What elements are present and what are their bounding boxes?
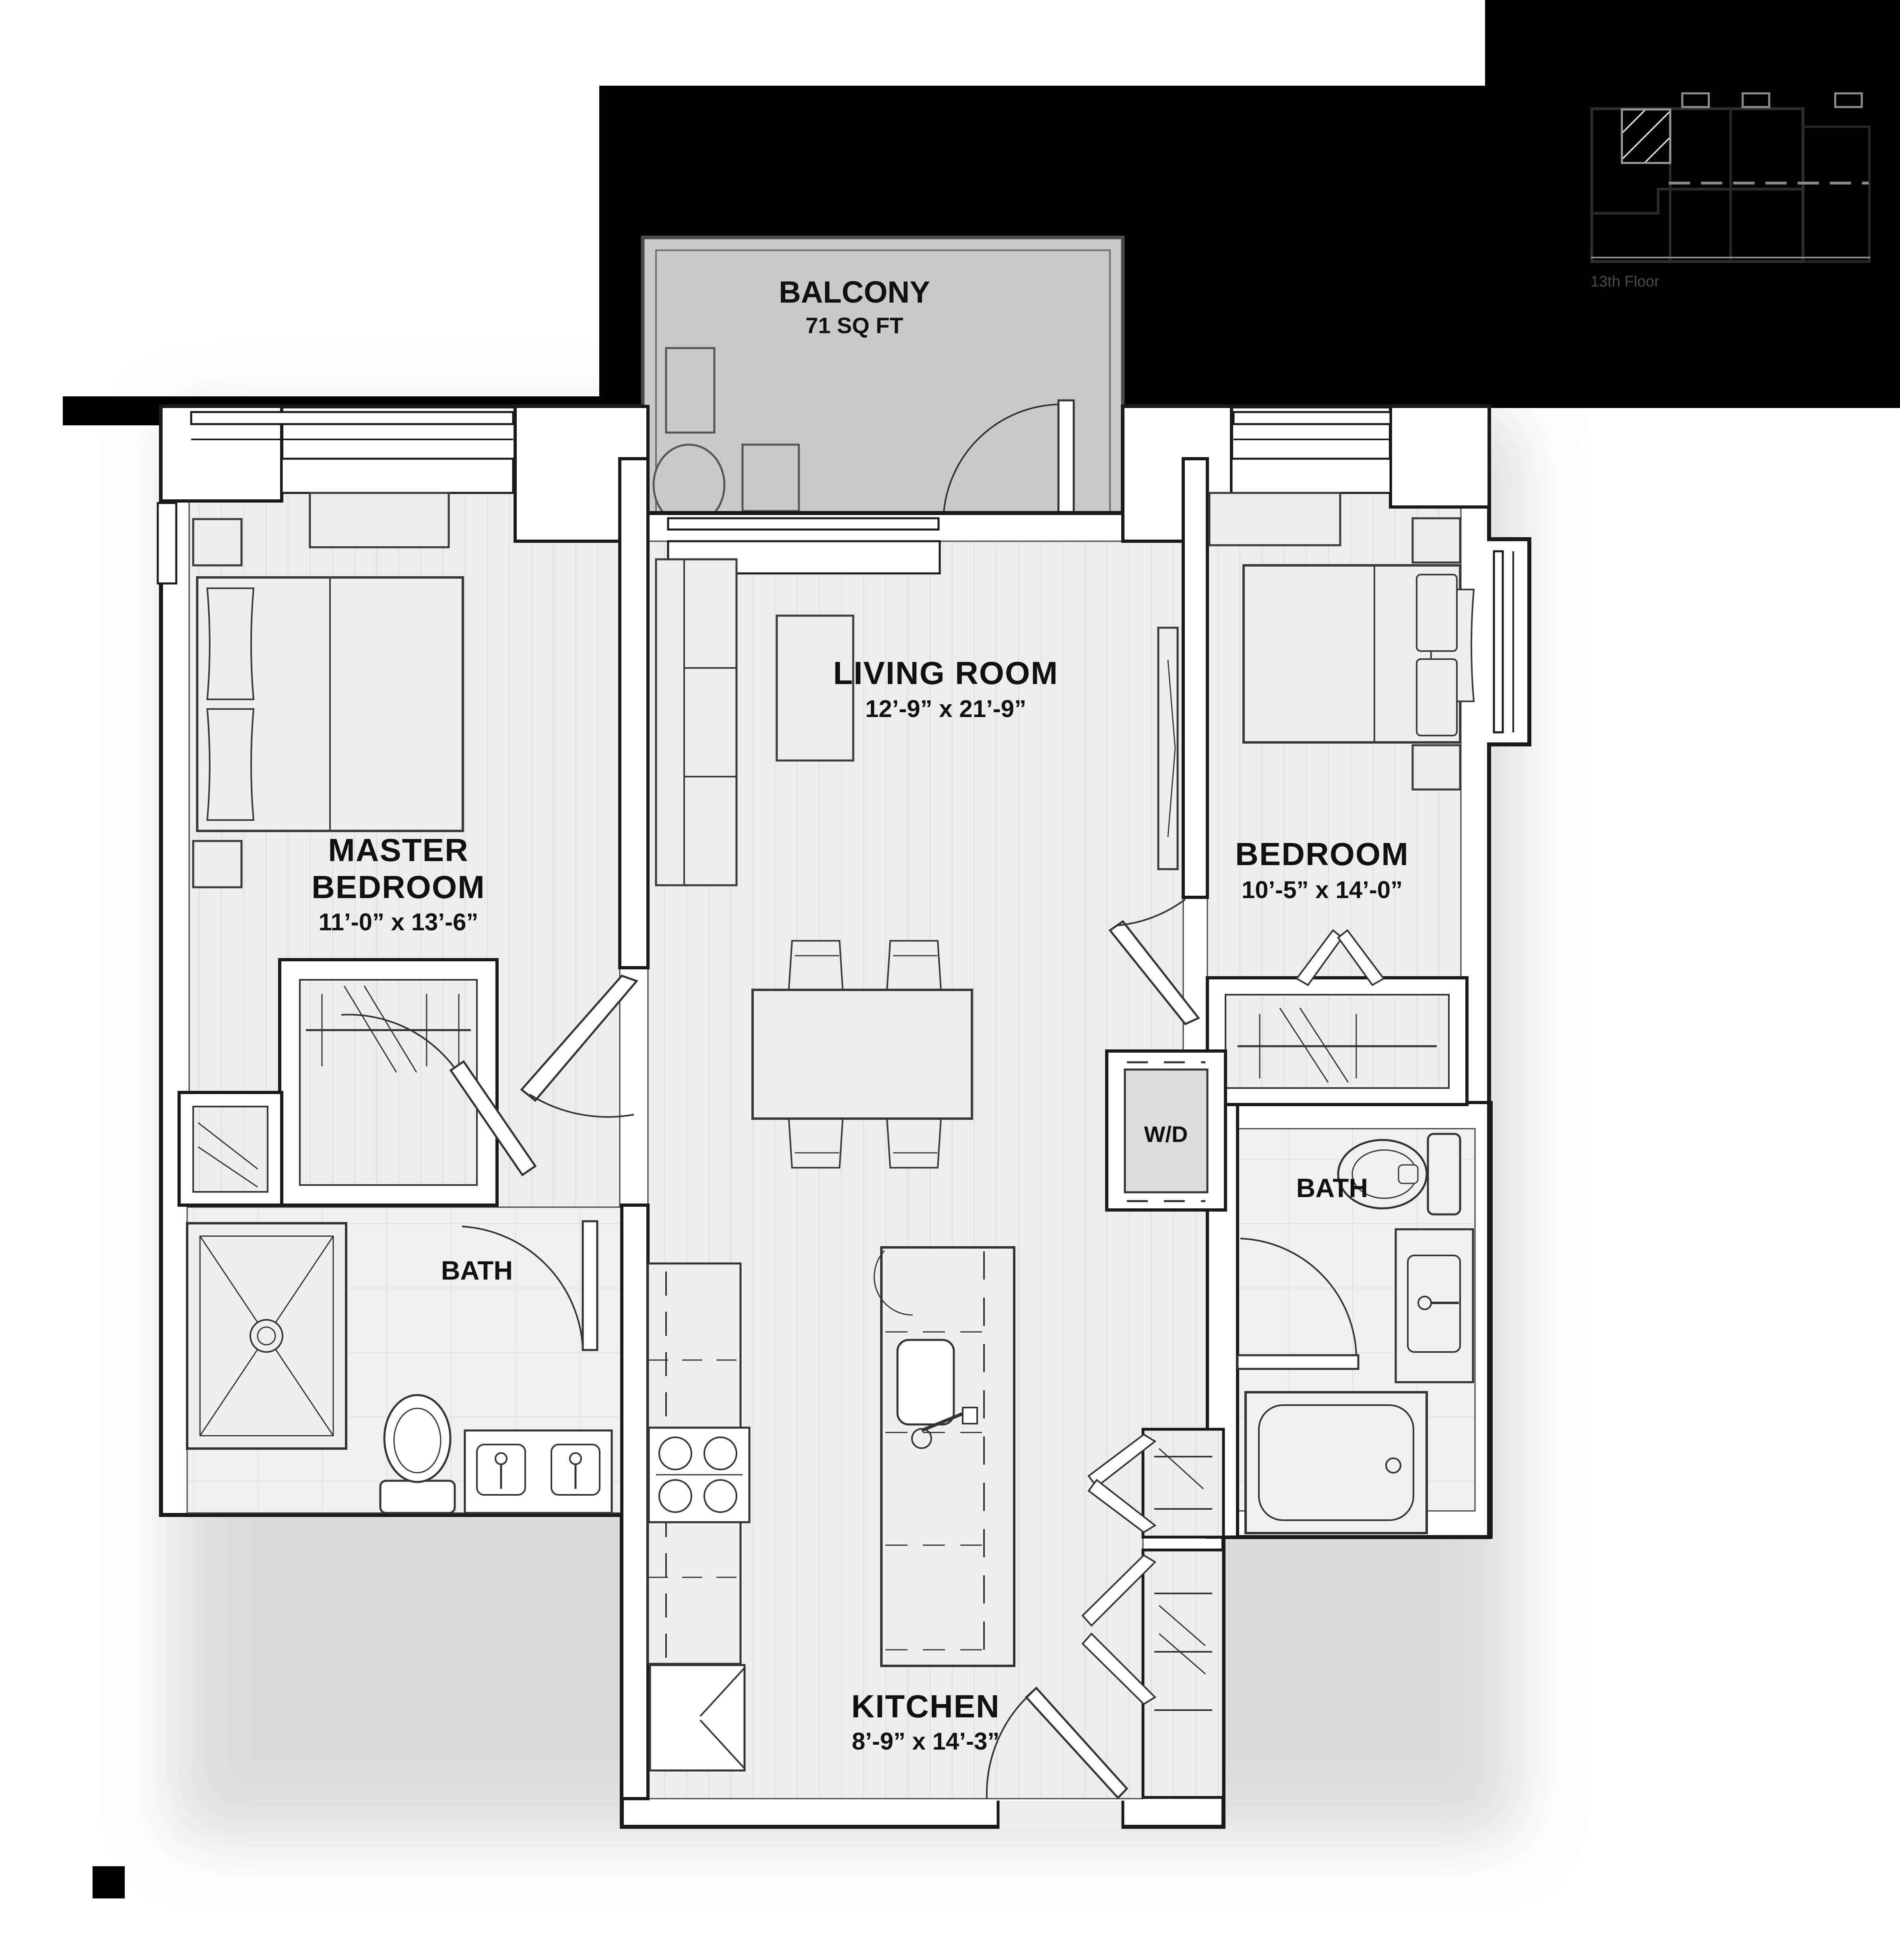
page-corner-mark [93, 1866, 125, 1898]
bedroom-bay-window [1494, 551, 1503, 732]
wall-kitchen-west [622, 1205, 648, 1799]
dining-table [753, 990, 972, 1119]
nightstand [1413, 745, 1460, 789]
master-bath-door-leaf [583, 1221, 597, 1350]
pillow [207, 709, 254, 820]
dining-chair [887, 941, 941, 990]
master-bedroom-label-2: BEDROOM [312, 869, 485, 905]
pillow [1417, 659, 1457, 736]
master-bedroom-window-sill [282, 459, 513, 493]
kitchen-dims: 8’-9” x 14’-3” [852, 1728, 1000, 1755]
master-bedroom-west-window [158, 503, 176, 583]
island-sink [897, 1340, 954, 1424]
master-walk-in-closet [280, 960, 535, 1205]
bedroom-label: BEDROOM [1235, 836, 1409, 872]
living-room-label: LIVING ROOM [833, 655, 1058, 691]
bedroom-window-sill [1232, 459, 1390, 493]
dining-chair [887, 1119, 941, 1168]
living-room-dims: 12’-9” x 21’-9” [865, 695, 1026, 722]
balcony-planter [666, 348, 714, 433]
bath2-door-leaf [1238, 1355, 1358, 1369]
linen-mirror-closet [179, 1092, 282, 1205]
bedroom-dims: 10’-5” x 14’-0” [1242, 876, 1403, 903]
floor-plan-canvas: 13th Floor BALCONY 71 SQ FT [0, 0, 1900, 1960]
dining-chair [789, 941, 843, 990]
master-bath-label: BATH [441, 1255, 513, 1285]
balcony-area-label: 71 SQ FT [806, 313, 904, 338]
master-toilet [380, 1395, 455, 1513]
dresser [310, 493, 449, 547]
master-bedroom-window [191, 412, 513, 424]
sofa [656, 559, 736, 885]
nightstand [193, 841, 241, 887]
pillow [207, 588, 254, 699]
key-plan-unit-marker [1622, 109, 1670, 163]
pillow [1417, 575, 1457, 651]
balcony-chair [743, 445, 799, 511]
balcony: BALCONY 71 SQ FT [643, 237, 1123, 525]
wall-lr-bedroom [1183, 459, 1207, 897]
master-bedroom-dims: 11’-0” x 13’-6” [319, 909, 479, 936]
key-plan-floor-label: 13th Floor [1591, 273, 1659, 290]
kitchen-range [649, 1428, 749, 1522]
balcony-door-leaf [1058, 400, 1074, 512]
laundry-closet: W/D [1107, 1051, 1225, 1210]
master-bedroom-label-1: MASTER [328, 832, 469, 868]
wall-mb-lr [620, 459, 648, 968]
bath2-label: BATH [1296, 1173, 1368, 1203]
laundry-label: W/D [1144, 1121, 1188, 1147]
living-room-window [668, 518, 939, 530]
balcony-label: BALCONY [779, 275, 930, 309]
nightstand [1413, 518, 1460, 563]
nightstand [193, 519, 241, 565]
dresser [1209, 493, 1340, 545]
kitchen-island [874, 1247, 1014, 1666]
kitchen-fridge [650, 1665, 745, 1770]
kitchen-label: KITCHEN [851, 1688, 1000, 1724]
bedroom-window [1234, 412, 1390, 424]
dining-chair [789, 1119, 843, 1168]
shower-drain [250, 1320, 283, 1352]
